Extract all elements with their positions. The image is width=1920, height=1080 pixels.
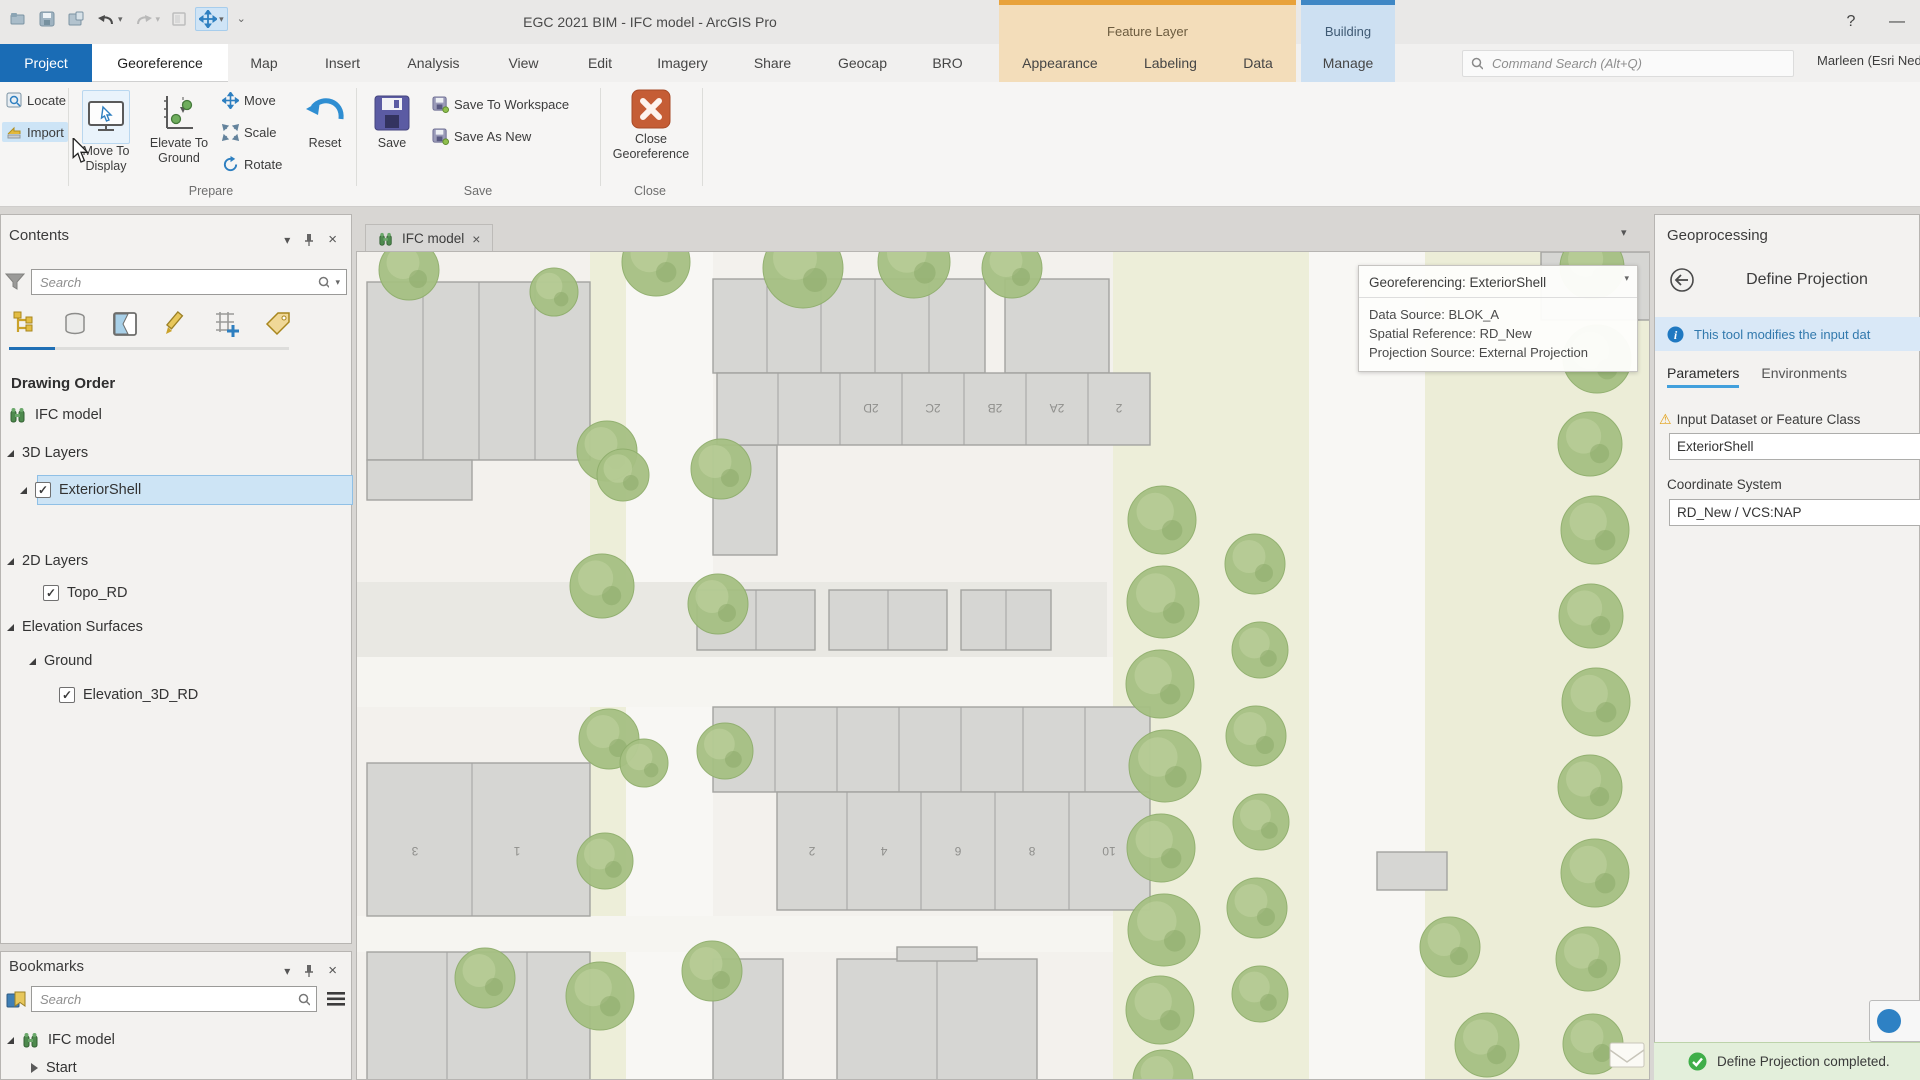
tab-bro[interactable]: BRO <box>910 44 985 82</box>
customize-qat-icon[interactable]: ⌄ <box>233 14 250 25</box>
contents-close-icon[interactable]: × <box>328 231 337 248</box>
tab-map[interactable]: Map <box>228 44 300 82</box>
coordinate-system-label: Coordinate System <box>1667 477 1782 492</box>
geoprocessing-panel: Geoprocessing Define Projection i This t… <box>1654 214 1920 1080</box>
bookmarks-panel: Bookmarks ▾ × IFC model Start <box>0 951 352 1080</box>
search-icon <box>1471 57 1483 70</box>
input-dataset-label: ⚠ Input Dataset or Feature Class <box>1659 411 1860 428</box>
import-button[interactable]: Import <box>2 122 68 142</box>
undo-caret-icon[interactable]: ▾ <box>118 15 123 24</box>
house-number-label: 3 <box>411 844 418 858</box>
tab-georeference[interactable]: Georeference <box>92 44 228 82</box>
map-tab-label: IFC model <box>402 231 464 246</box>
list-by-snapping-icon[interactable] <box>211 309 241 339</box>
group-close-label: Close <box>600 184 700 198</box>
bookmark-item-start[interactable]: Start <box>31 1060 77 1076</box>
warning-icon: ⚠ <box>1659 411 1672 428</box>
tab-edit[interactable]: Edit <box>565 44 635 82</box>
contents-panel-title: Contents <box>9 227 69 244</box>
overlay-data-source: Data Source: BLOK_A <box>1369 305 1627 324</box>
map-drawing: 2D2C2B2A224681031 <box>357 252 1650 1080</box>
tree-item-topo-rd[interactable]: ✓ Topo_RD <box>43 585 127 601</box>
search-icon <box>318 276 330 289</box>
reset-button[interactable]: Reset <box>296 90 354 151</box>
georeferencing-overlay-title: Georeferencing: ExteriorShell ▾ <box>1359 266 1637 298</box>
tab-parameters[interactable]: Parameters <box>1667 365 1739 388</box>
help-button[interactable]: ? <box>1828 13 1874 31</box>
building-tabs: Manage <box>1301 44 1395 82</box>
house-number-label: 2D <box>863 401 879 415</box>
coordinate-system-field[interactable]: RD_New / VCS:NAP <box>1669 499 1920 526</box>
bookmark-icon <box>5 990 29 1010</box>
map-view-tab[interactable]: IFC model × <box>365 224 493 252</box>
import-icon <box>6 124 22 140</box>
expand-icon[interactable] <box>31 1063 38 1073</box>
bookmark-item-ifc-model[interactable]: IFC model <box>7 1032 115 1048</box>
hamburger-menu-icon[interactable] <box>327 992 345 1006</box>
arcgis-pro-window: ▾ ▾ ▾ ⌄ EGC 2021 BIM - IFC model - ArcGI… <box>0 0 1920 1080</box>
tab-geocap[interactable]: Geocap <box>815 44 910 82</box>
filter-icon[interactable] <box>5 273 25 291</box>
folder-icon <box>1609 1038 1645 1068</box>
bookmarks-search[interactable] <box>31 986 317 1012</box>
list-by-editing-map-icon[interactable] <box>111 310 139 338</box>
save-to-workspace-button[interactable]: Save To Workspace <box>428 94 573 115</box>
house-number-label: 6 <box>954 844 961 858</box>
back-arrow-icon[interactable] <box>1669 267 1695 293</box>
user-account[interactable]: Marleen (Esri Nederlan <box>1812 53 1920 68</box>
house-number-label: 2C <box>925 401 941 415</box>
command-search[interactable] <box>1462 50 1794 77</box>
undo-button[interactable]: ▾ <box>93 9 126 29</box>
scale-icon <box>222 124 239 141</box>
completion-banner: Define Projection completed. <box>1654 1042 1920 1080</box>
tab-appearance[interactable]: Appearance <box>1016 44 1104 82</box>
input-dataset-field[interactable]: ExteriorShell <box>1669 433 1920 460</box>
map-view-menu-icon[interactable]: ▾ <box>1621 226 1627 239</box>
save-as-new-icon <box>432 128 449 145</box>
elevate-to-ground-button[interactable]: Elevate To Ground <box>144 90 214 166</box>
tool-info-bar: i This tool modifies the input dat <box>1655 317 1920 351</box>
overlay-spatial-reference: Spatial Reference: RD_New <box>1369 324 1627 343</box>
elevation-3d-rd-checkbox[interactable]: ✓ <box>59 687 75 703</box>
elevate-to-ground-icon <box>159 90 199 136</box>
tab-manage[interactable]: Manage <box>1317 44 1380 82</box>
quick-access-toolbar: ▾ ▾ ▾ ⌄ <box>6 7 250 31</box>
info-icon: i <box>1667 326 1684 343</box>
close-georeference-button[interactable]: Close Georeference <box>606 86 696 162</box>
house-number-label: 2A <box>1050 401 1065 415</box>
feature-layer-tabs: Appearance Labeling Data <box>999 44 1296 82</box>
mouse-cursor <box>70 138 92 169</box>
topo-rd-checkbox[interactable]: ✓ <box>43 585 59 601</box>
tree-group-elevation-surfaces[interactable]: Elevation Surfaces <box>7 619 143 635</box>
collapse-icon[interactable] <box>7 1037 14 1044</box>
collapse-icon[interactable] <box>7 558 14 565</box>
user-name: Marleen (Esri Nederlan <box>1817 53 1920 68</box>
tab-environments[interactable]: Environments <box>1761 365 1847 388</box>
collapse-icon[interactable] <box>7 624 14 631</box>
tree-item-exteriorshell[interactable]: ✓ ExteriorShell <box>37 475 353 505</box>
minimize-button[interactable]: — <box>1874 13 1920 31</box>
open-project-icon[interactable] <box>6 8 30 30</box>
save-georeference-button[interactable]: Save <box>364 90 420 151</box>
tab-imagery[interactable]: Imagery <box>635 44 730 82</box>
window-title: EGC 2021 BIM - IFC model - ArcGIS Pro <box>300 0 1000 44</box>
close-georeference-icon <box>630 86 672 132</box>
contents-toolbar <box>11 309 293 339</box>
house-number-label: 10 <box>1102 844 1116 858</box>
active-toolbar-indicator <box>9 347 55 350</box>
save-as-new-button[interactable]: Save As New <box>428 126 535 147</box>
ribbon-body: Locate Import Move To Display Elevate To… <box>0 82 1920 207</box>
collapse-icon[interactable] <box>7 450 14 457</box>
contents-search[interactable]: ▾ <box>31 269 347 295</box>
search-options-caret-icon[interactable]: ▾ <box>335 278 340 287</box>
move-icon <box>222 92 239 109</box>
rotate-button[interactable]: Rotate <box>218 154 286 175</box>
house-number-label: 1 <box>513 844 520 858</box>
house-number-label: 2B <box>988 401 1003 415</box>
package-project-icon[interactable] <box>64 8 88 30</box>
tool-info-text: This tool modifies the input dat <box>1694 327 1870 342</box>
locate-icon <box>6 92 22 108</box>
georeferencing-overlay: Georeferencing: ExteriorShell ▾ Data Sou… <box>1358 265 1638 372</box>
group-prepare-label: Prepare <box>68 184 354 198</box>
scale-button[interactable]: Scale <box>218 122 281 143</box>
run-button-partial[interactable] <box>1869 1000 1920 1042</box>
overlay-projection-source: Projection Source: External Projection <box>1369 343 1627 362</box>
contents-search-input[interactable] <box>38 274 312 291</box>
reset-icon <box>303 90 347 136</box>
overlay-collapse-icon[interactable]: ▾ <box>1624 274 1629 283</box>
tab-insert[interactable]: Insert <box>300 44 385 82</box>
contents-pin-icon[interactable] <box>304 233 314 246</box>
tab-analysis[interactable]: Analysis <box>385 44 482 82</box>
tab-data[interactable]: Data <box>1237 44 1279 82</box>
tab-view[interactable]: View <box>482 44 565 82</box>
success-check-icon <box>1688 1052 1707 1071</box>
contents-menu-icon[interactable]: ▾ <box>284 233 290 247</box>
bookmarks-pin-icon[interactable] <box>304 964 314 977</box>
tab-labeling[interactable]: Labeling <box>1138 44 1203 82</box>
layout-icon[interactable] <box>168 9 190 29</box>
tree-item-ifc-model[interactable]: IFC model <box>9 407 102 423</box>
locate-button[interactable]: Locate <box>2 90 70 110</box>
label-tag-icon[interactable] <box>263 310 293 338</box>
house-number-label: 8 <box>1028 844 1035 858</box>
search-icon <box>298 993 310 1006</box>
geoprocessing-title: Geoprocessing <box>1667 227 1768 244</box>
tab-project[interactable]: Project <box>0 44 92 82</box>
completion-message: Define Projection completed. <box>1717 1054 1890 1069</box>
drawing-order-heading: Drawing Order <box>11 375 115 392</box>
house-number-label: 2 <box>808 844 815 858</box>
list-by-data-source-icon[interactable] <box>61 310 89 338</box>
bookmarks-close-icon[interactable]: × <box>328 962 337 979</box>
bookmarks-menu-icon[interactable]: ▾ <box>284 964 290 978</box>
run-icon <box>1877 1009 1901 1033</box>
exteriorshell-checkbox[interactable]: ✓ <box>35 482 51 498</box>
redo-button[interactable]: ▾ <box>131 9 164 29</box>
tab-share[interactable]: Share <box>730 44 815 82</box>
save-icon <box>373 90 411 136</box>
scene-icon <box>378 232 394 246</box>
collapse-icon[interactable] <box>29 658 36 665</box>
list-by-drawing-order-icon[interactable] <box>11 310 39 338</box>
map-canvas[interactable]: 2D2C2B2A224681031 Georeferencing: Exteri… <box>356 251 1650 1080</box>
title-bar: ▾ ▾ ▾ ⌄ EGC 2021 BIM - IFC model - ArcGI… <box>0 0 1920 44</box>
tree-group-ground[interactable]: Ground <box>29 653 92 669</box>
tree-group-3d-layers[interactable]: 3D Layers <box>7 445 88 461</box>
move-tool-quick-button[interactable]: ▾ <box>195 7 228 31</box>
tool-title: Define Projection <box>1695 271 1919 289</box>
group-save-label: Save <box>358 184 598 198</box>
rotate-icon <box>222 156 239 173</box>
contents-panel: Contents ▾ × ▾ Drawing Order IFC model <box>0 214 352 944</box>
move-tool-caret-icon[interactable]: ▾ <box>219 15 224 24</box>
tree-item-elevation-3d-rd[interactable]: ✓ Elevation_3D_RD <box>59 687 198 703</box>
scene-icon <box>22 1032 40 1048</box>
contextual-group-building: Building <box>1301 0 1395 44</box>
house-number-label: 2 <box>1115 401 1122 415</box>
tree-group-2d-layers[interactable]: 2D Layers <box>7 553 88 569</box>
house-number-label: 4 <box>880 844 887 858</box>
bookmarks-panel-title: Bookmarks <box>9 958 84 975</box>
save-project-icon[interactable] <box>35 8 59 30</box>
contextual-group-feature-layer: Feature Layer <box>999 0 1296 44</box>
collapse-icon[interactable] <box>20 487 27 494</box>
bookmarks-search-input[interactable] <box>38 991 292 1008</box>
scene-icon <box>9 407 27 423</box>
save-to-workspace-icon <box>432 96 449 113</box>
move-to-display-icon <box>82 90 130 144</box>
redo-caret-icon[interactable]: ▾ <box>156 15 161 24</box>
pencil-edit-icon[interactable] <box>161 310 189 338</box>
map-tab-close-icon[interactable]: × <box>472 231 480 247</box>
move-button[interactable]: Move <box>218 90 280 111</box>
command-search-input[interactable] <box>1490 55 1785 72</box>
ribbon-tab-row: Project Georeference Map Insert Analysis… <box>0 44 1920 82</box>
